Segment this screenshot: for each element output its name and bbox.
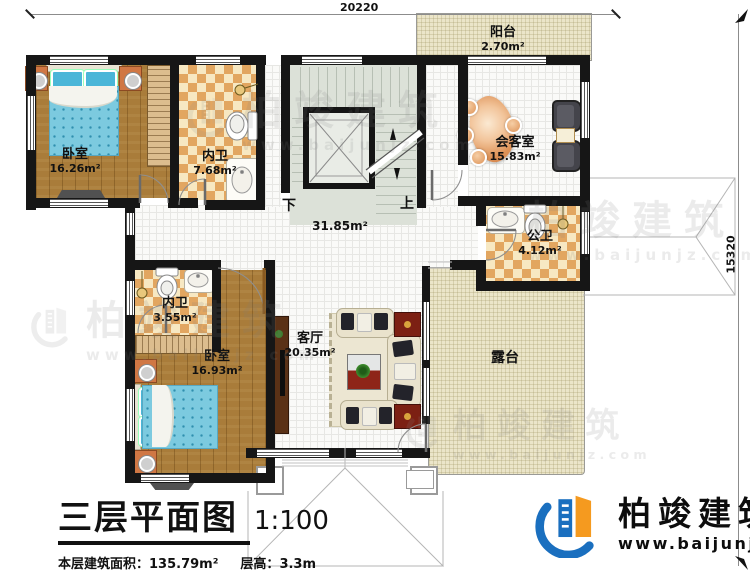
room-name: 公卫	[500, 230, 580, 245]
top-dimension-label: 20220	[340, 1, 378, 14]
stair-treads-top	[292, 67, 415, 107]
bath2-label: 内卫 3.55m²	[140, 297, 210, 325]
cushion	[341, 313, 354, 330]
cushion	[362, 407, 377, 426]
window	[196, 56, 240, 64]
window	[581, 82, 589, 138]
side-table	[394, 404, 421, 429]
window	[581, 212, 589, 254]
elevator-shaft	[303, 107, 375, 189]
wall-segment	[450, 260, 486, 270]
cushion	[346, 407, 359, 424]
bedroom2-label: 卧室 16.93m²	[172, 350, 262, 378]
room-area: 15.83m²	[470, 151, 560, 164]
window-shade	[57, 190, 105, 198]
nightstand	[133, 450, 157, 474]
bedroom1-label: 卧室 16.26m²	[30, 148, 120, 176]
room-name: 阳台	[453, 26, 553, 41]
roof-outline-right	[583, 178, 735, 295]
vanity	[184, 269, 215, 293]
room-area: 2.70m²	[453, 41, 553, 54]
stool	[505, 117, 522, 134]
wall-segment	[422, 452, 430, 458]
dimension-arrow	[735, 9, 748, 570]
balcony-slider	[468, 56, 546, 64]
room-area: 31.85m²	[300, 220, 380, 234]
lamp-icon	[139, 456, 155, 472]
title-underline	[58, 541, 250, 545]
scale-label: 1:100	[254, 506, 329, 536]
window	[356, 449, 402, 457]
room-area: 4.12m²	[500, 245, 580, 258]
room-area: 7.68m²	[185, 165, 245, 178]
floorplan-canvas: 20220 15320	[0, 0, 750, 572]
hall-strip-right	[426, 65, 458, 207]
brand-icon	[24, 295, 78, 357]
window	[126, 281, 134, 315]
bath1-label: 内卫 7.68m²	[185, 150, 245, 178]
window	[423, 368, 429, 416]
lamp-icon	[139, 365, 155, 381]
window	[50, 56, 108, 64]
room-area: 16.26m²	[30, 163, 120, 176]
stair-up-label: 上	[400, 193, 414, 213]
reception-label: 会客室 15.83m²	[470, 136, 560, 164]
wall-segment	[256, 55, 265, 210]
lamp-icon	[125, 73, 141, 89]
side-table	[394, 312, 421, 337]
wall-segment	[458, 63, 468, 165]
balcony-label: 阳台 2.70m²	[453, 26, 553, 54]
window	[126, 389, 134, 441]
story-height: 层高：3.3m	[240, 553, 316, 572]
window	[27, 96, 35, 150]
emblem-icon	[404, 321, 411, 328]
room-name: 会客室	[470, 136, 560, 151]
wall-segment	[205, 200, 265, 210]
cushion	[394, 363, 416, 380]
hall-strip-left	[265, 65, 281, 207]
wall-segment	[476, 281, 590, 291]
wardrobe	[147, 65, 172, 167]
room-name: 内卫	[185, 150, 245, 165]
brand-logo: 柏竣建筑 www.baijunjz.com	[524, 492, 750, 558]
cushion	[379, 407, 392, 424]
plant-icon	[356, 364, 370, 378]
living-label: 客厅 20.35m²	[270, 332, 350, 360]
wall-segment	[212, 260, 221, 352]
window	[257, 449, 329, 457]
terrace-step	[406, 470, 434, 489]
room-name: 内卫	[140, 297, 210, 312]
wall-segment	[458, 196, 590, 206]
wall-segment	[476, 206, 486, 226]
room-name: 露台	[475, 350, 535, 366]
window	[50, 199, 108, 207]
window	[302, 56, 362, 64]
window	[141, 474, 189, 482]
wall-segment	[125, 205, 135, 483]
room-area: 3.55m²	[140, 312, 210, 325]
room-name: 客厅	[270, 332, 350, 347]
wall-segment	[281, 63, 290, 193]
page-title: 三层平面图	[58, 490, 238, 539]
wall-segment	[125, 260, 218, 270]
brand-logo-icon	[524, 492, 610, 558]
cushion	[357, 313, 372, 332]
title-block: 三层平面图 1:100 本层建筑面积：135.79m² 层高：3.3m	[58, 490, 329, 572]
room-name: 卧室	[30, 148, 120, 163]
right-dimension-line	[738, 14, 739, 566]
window	[423, 302, 429, 360]
public-bath-label: 公卫 4.12m²	[500, 230, 580, 258]
right-dimension-label: 15320	[725, 235, 738, 273]
nightstand	[119, 66, 142, 91]
nightstand	[133, 359, 157, 383]
stair-down-label: 下	[282, 195, 296, 215]
wall-segment	[170, 63, 179, 208]
top-dimension-line	[30, 14, 616, 15]
cushion	[392, 340, 414, 358]
emblem-icon	[404, 413, 411, 420]
sofa-right	[387, 334, 421, 408]
room-name: 卧室	[172, 350, 262, 365]
cushion	[374, 313, 388, 330]
cushion	[392, 384, 414, 401]
brand-website: www.baijunjz.com	[618, 534, 750, 553]
window-shade	[150, 483, 194, 490]
sofa-bottom	[340, 400, 398, 430]
window	[126, 213, 134, 235]
bed-sheet	[152, 385, 174, 447]
terrace-label: 露台	[475, 350, 535, 366]
hall-area-label: 31.85m²	[300, 220, 380, 234]
brand-company: 柏竣建筑	[618, 497, 750, 530]
room-area: 20.35m²	[270, 347, 350, 360]
floor-area: 本层建筑面积：135.79m²	[58, 553, 218, 572]
room-area: 16.93m²	[172, 365, 262, 378]
terrace-floor	[428, 267, 585, 475]
wall-segment	[417, 63, 426, 208]
